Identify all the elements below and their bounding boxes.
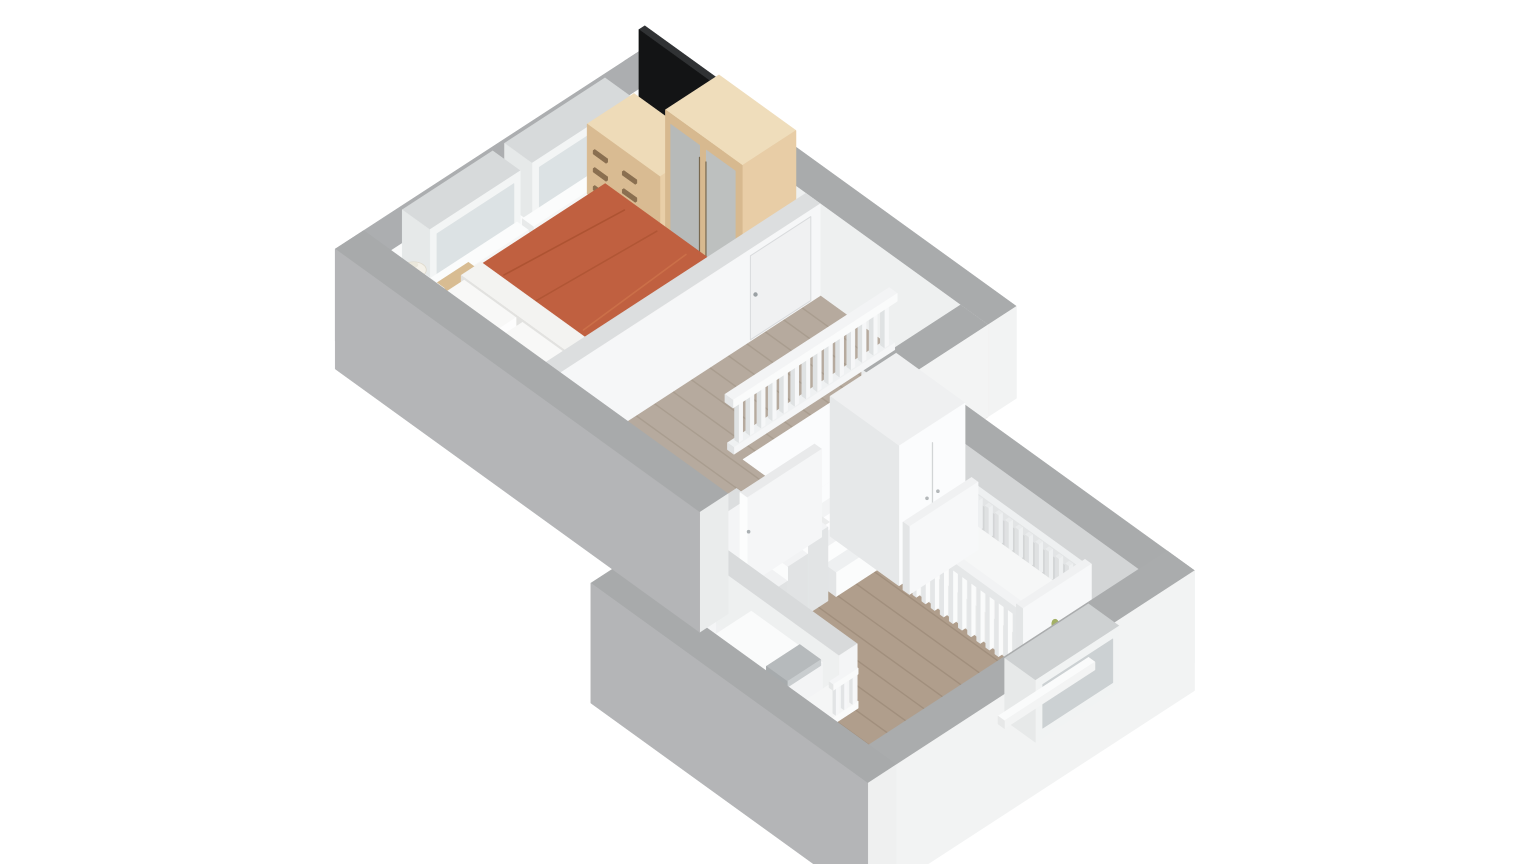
floorplan-canvas: 3D floor plan render — upper floor with … (0, 0, 1536, 864)
floorplan-viewport: 3D floor plan render — upper floor with … (0, 0, 1536, 864)
